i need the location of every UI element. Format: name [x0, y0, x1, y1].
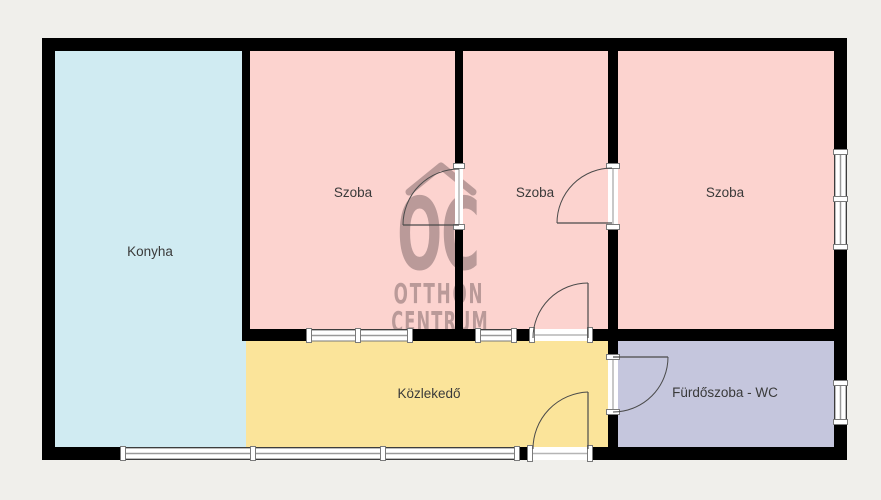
frame-jamb	[834, 420, 848, 425]
watermark-logo: OCOTTHONCENTRUM	[391, 166, 489, 338]
window-balcony-window	[121, 447, 520, 461]
frame-jamb	[408, 329, 413, 343]
frame-jamb	[528, 446, 533, 462]
wall-konyha-szoba1-wall	[242, 51, 250, 341]
room-label-furdoszoba: Fürdőszoba - WC	[672, 385, 778, 400]
floorplan-canvas: OCOTTHONCENTRUMKonyhaSzobaSzobaSzobaKözl…	[0, 0, 881, 500]
watermark-text-0: OC	[397, 177, 479, 293]
window-furdoszoba-window	[834, 381, 848, 425]
frame-jamb	[607, 225, 620, 230]
frame-jamb	[834, 245, 848, 250]
room-label-konyha: Konyha	[127, 244, 173, 259]
floorplan-svg: OCOTTHONCENTRUMKonyhaSzobaSzobaSzobaKözl…	[0, 0, 881, 500]
frame-jamb	[515, 447, 520, 461]
frame-jamb	[476, 329, 481, 343]
frame-jamb	[834, 197, 848, 202]
frame-jamb	[512, 329, 517, 343]
room-label-szoba-2: Szoba	[516, 185, 555, 200]
frame-jamb	[834, 381, 848, 386]
frame-jamb	[381, 447, 386, 461]
watermark-text-1: OTTHON	[394, 279, 485, 311]
frame-jamb	[834, 150, 848, 155]
frame-jamb	[307, 329, 312, 343]
wall-top-wall	[42, 38, 847, 51]
frame-jamb	[251, 447, 256, 461]
frame-jamb	[454, 164, 465, 169]
window-szoba1-interior-window	[307, 329, 413, 343]
frame-jamb	[356, 329, 361, 343]
room-label-szoba-3: Szoba	[706, 185, 745, 200]
wall-left-wall	[42, 38, 55, 460]
frame-jamb	[121, 447, 126, 461]
room-label-kozlekedo: Közlekedő	[397, 386, 460, 401]
window-szoba3-window	[834, 150, 848, 250]
window-szoba2-interior-window	[476, 329, 517, 343]
room-label-szoba-1: Szoba	[334, 185, 373, 200]
